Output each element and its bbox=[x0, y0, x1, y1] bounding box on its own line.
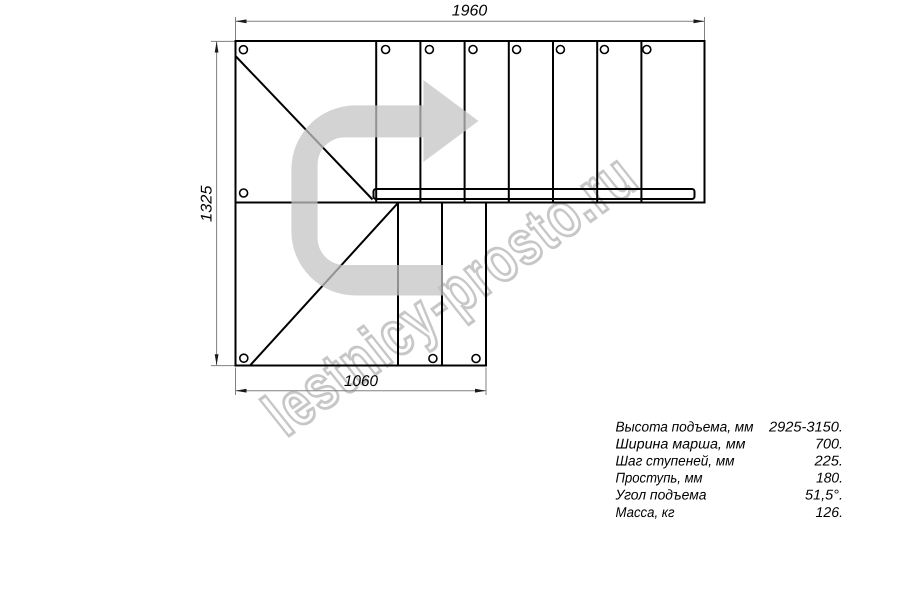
svg-text:Проступь, мм: Проступь, мм bbox=[616, 471, 703, 487]
svg-text:126.: 126. bbox=[816, 505, 844, 521]
svg-text:1325: 1325 bbox=[199, 185, 216, 222]
svg-text:51,5°.: 51,5°. bbox=[805, 488, 843, 504]
svg-text:Шаг ступеней, мм: Шаг ступеней, мм bbox=[616, 454, 735, 470]
svg-text:1960: 1960 bbox=[452, 3, 488, 20]
svg-text:180.: 180. bbox=[816, 471, 843, 487]
svg-text:1060: 1060 bbox=[344, 373, 378, 390]
svg-text:Масса, кг: Масса, кг bbox=[616, 505, 675, 521]
svg-text:Угол подъема: Угол подъема bbox=[615, 488, 707, 504]
svg-text:225.: 225. bbox=[813, 454, 843, 470]
svg-text:700.: 700. bbox=[815, 436, 843, 452]
svg-text:Ширина марша, мм: Ширина марша, мм bbox=[616, 436, 746, 452]
svg-text:2925-3150.: 2925-3150. bbox=[768, 419, 843, 435]
svg-text:Высота подъема, мм: Высота подъема, мм bbox=[616, 419, 754, 435]
